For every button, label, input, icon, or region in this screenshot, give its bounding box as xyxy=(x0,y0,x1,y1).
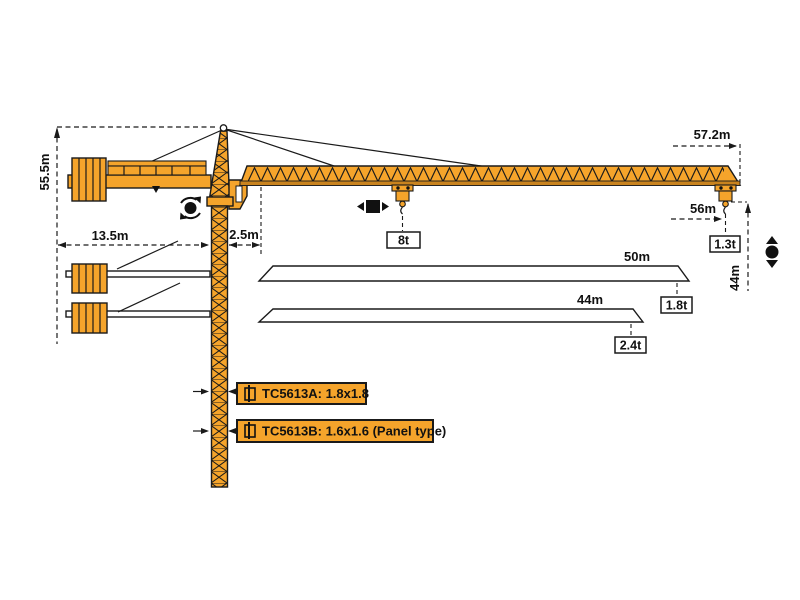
slew-arc-top xyxy=(181,198,197,203)
hook-radius-label: 56m xyxy=(690,201,716,216)
arrow-right-icon xyxy=(729,143,737,149)
arrow-right-icon xyxy=(201,242,209,248)
trolley-wheel-icon xyxy=(729,186,732,189)
leader-line xyxy=(118,283,180,312)
arrow-right-icon xyxy=(201,389,209,395)
jib-option-44: 44m 2.4t xyxy=(259,292,646,353)
jib-option-44-length-label: 44m xyxy=(577,292,603,307)
trolley-square-icon xyxy=(366,200,380,213)
counterweight-option-1 xyxy=(66,241,210,293)
jib-option-50-length-label: 50m xyxy=(624,249,650,264)
jib-option-bar xyxy=(259,309,643,322)
tower-head-lattice xyxy=(210,131,230,198)
hoist-height-label: 44m xyxy=(727,265,742,291)
hoist-dot-icon xyxy=(766,246,779,259)
dimension-counter-jib: 13.5m xyxy=(58,228,209,248)
dimension-hook-radius: 56m xyxy=(671,201,722,222)
arrow-left-icon xyxy=(228,389,236,395)
trolley-wheel-icon xyxy=(719,186,722,189)
counterweight-block xyxy=(72,264,107,293)
counter-jib-rail xyxy=(108,161,206,166)
arrow-left-icon xyxy=(229,242,237,248)
tip-capacity-box: 1.3t xyxy=(710,236,740,252)
model-a-label: TC5613A: 1.8x1.8 xyxy=(262,386,369,401)
jib-option-50: 50m 1.8t xyxy=(259,249,692,313)
hook-block xyxy=(396,191,409,201)
trolley-travel-icon xyxy=(357,200,389,213)
jib-root-offset-label: 2.5m xyxy=(229,227,259,242)
trolley-wheel-icon xyxy=(406,186,409,189)
bracket-slot xyxy=(236,186,242,202)
hoist-icon xyxy=(766,236,779,268)
max-capacity-label: 8t xyxy=(398,234,410,248)
slew-dot-icon xyxy=(185,202,197,214)
main-jib xyxy=(240,166,740,186)
arrow-left-icon xyxy=(357,202,364,211)
arrow-down-icon xyxy=(766,260,778,268)
hook-sheave xyxy=(723,201,729,207)
model-b-label: TC5613B: 1.6x1.6 (Panel type) xyxy=(262,424,446,439)
crane-diagram-page: 55.5m 13.5m 2.5m 57.2m 56m 44m xyxy=(0,0,800,600)
arrow-right-icon xyxy=(382,202,389,211)
hook-icon xyxy=(401,207,403,214)
jib-option-50-load-label: 1.8t xyxy=(666,299,688,313)
mast-lattice xyxy=(212,206,228,487)
counter-jib-tie-rope xyxy=(150,130,222,162)
jib-option-44-load-label: 2.4t xyxy=(620,339,642,353)
model-b-callout: TC5613B: 1.6x1.6 (Panel type) xyxy=(193,420,446,442)
trolley-mid xyxy=(392,185,413,231)
counter-jib xyxy=(68,158,211,201)
max-capacity-box: 8t xyxy=(387,232,420,248)
crane-diagram-canvas: 55.5m 13.5m 2.5m 57.2m 56m 44m xyxy=(0,0,800,600)
arrow-right-icon xyxy=(201,428,209,434)
counterweight-block xyxy=(72,303,107,333)
trolley-frame xyxy=(715,185,736,191)
slew-icon xyxy=(180,197,201,220)
arrow-right-icon xyxy=(252,242,260,248)
apex-pin xyxy=(220,125,226,131)
max-jib-length-label: 57.2m xyxy=(694,127,731,142)
marker-arrow-icon xyxy=(152,186,160,193)
trolley-tip xyxy=(715,185,736,235)
arrow-up-icon xyxy=(54,127,60,138)
jib-tie-rope-long xyxy=(224,129,495,168)
tip-capacity-label: 1.3t xyxy=(714,238,736,252)
arrow-left-icon xyxy=(58,242,66,248)
tower-height-label: 55.5m xyxy=(37,154,52,191)
arrow-left-icon xyxy=(228,428,236,434)
hook-icon xyxy=(724,207,726,214)
slew-arc-bottom xyxy=(185,213,201,218)
jib-tie-rope-short xyxy=(224,129,337,167)
counter-jib-platform xyxy=(108,166,206,175)
arrow-right-icon xyxy=(714,216,722,222)
arrow-up-icon xyxy=(766,236,778,244)
jib-lattice xyxy=(248,167,724,182)
arrow-up-icon xyxy=(745,203,751,213)
trolley-frame xyxy=(392,185,413,191)
jib-option-bar xyxy=(259,266,689,281)
counterweight-top xyxy=(72,158,106,201)
trolley-wheel-icon xyxy=(396,186,399,189)
hook-sheave xyxy=(400,201,406,207)
hook-block xyxy=(719,191,732,201)
counter-jib-length-label: 13.5m xyxy=(92,228,129,243)
slewing-platform xyxy=(207,197,233,206)
jib-bottom-chord xyxy=(240,181,740,186)
